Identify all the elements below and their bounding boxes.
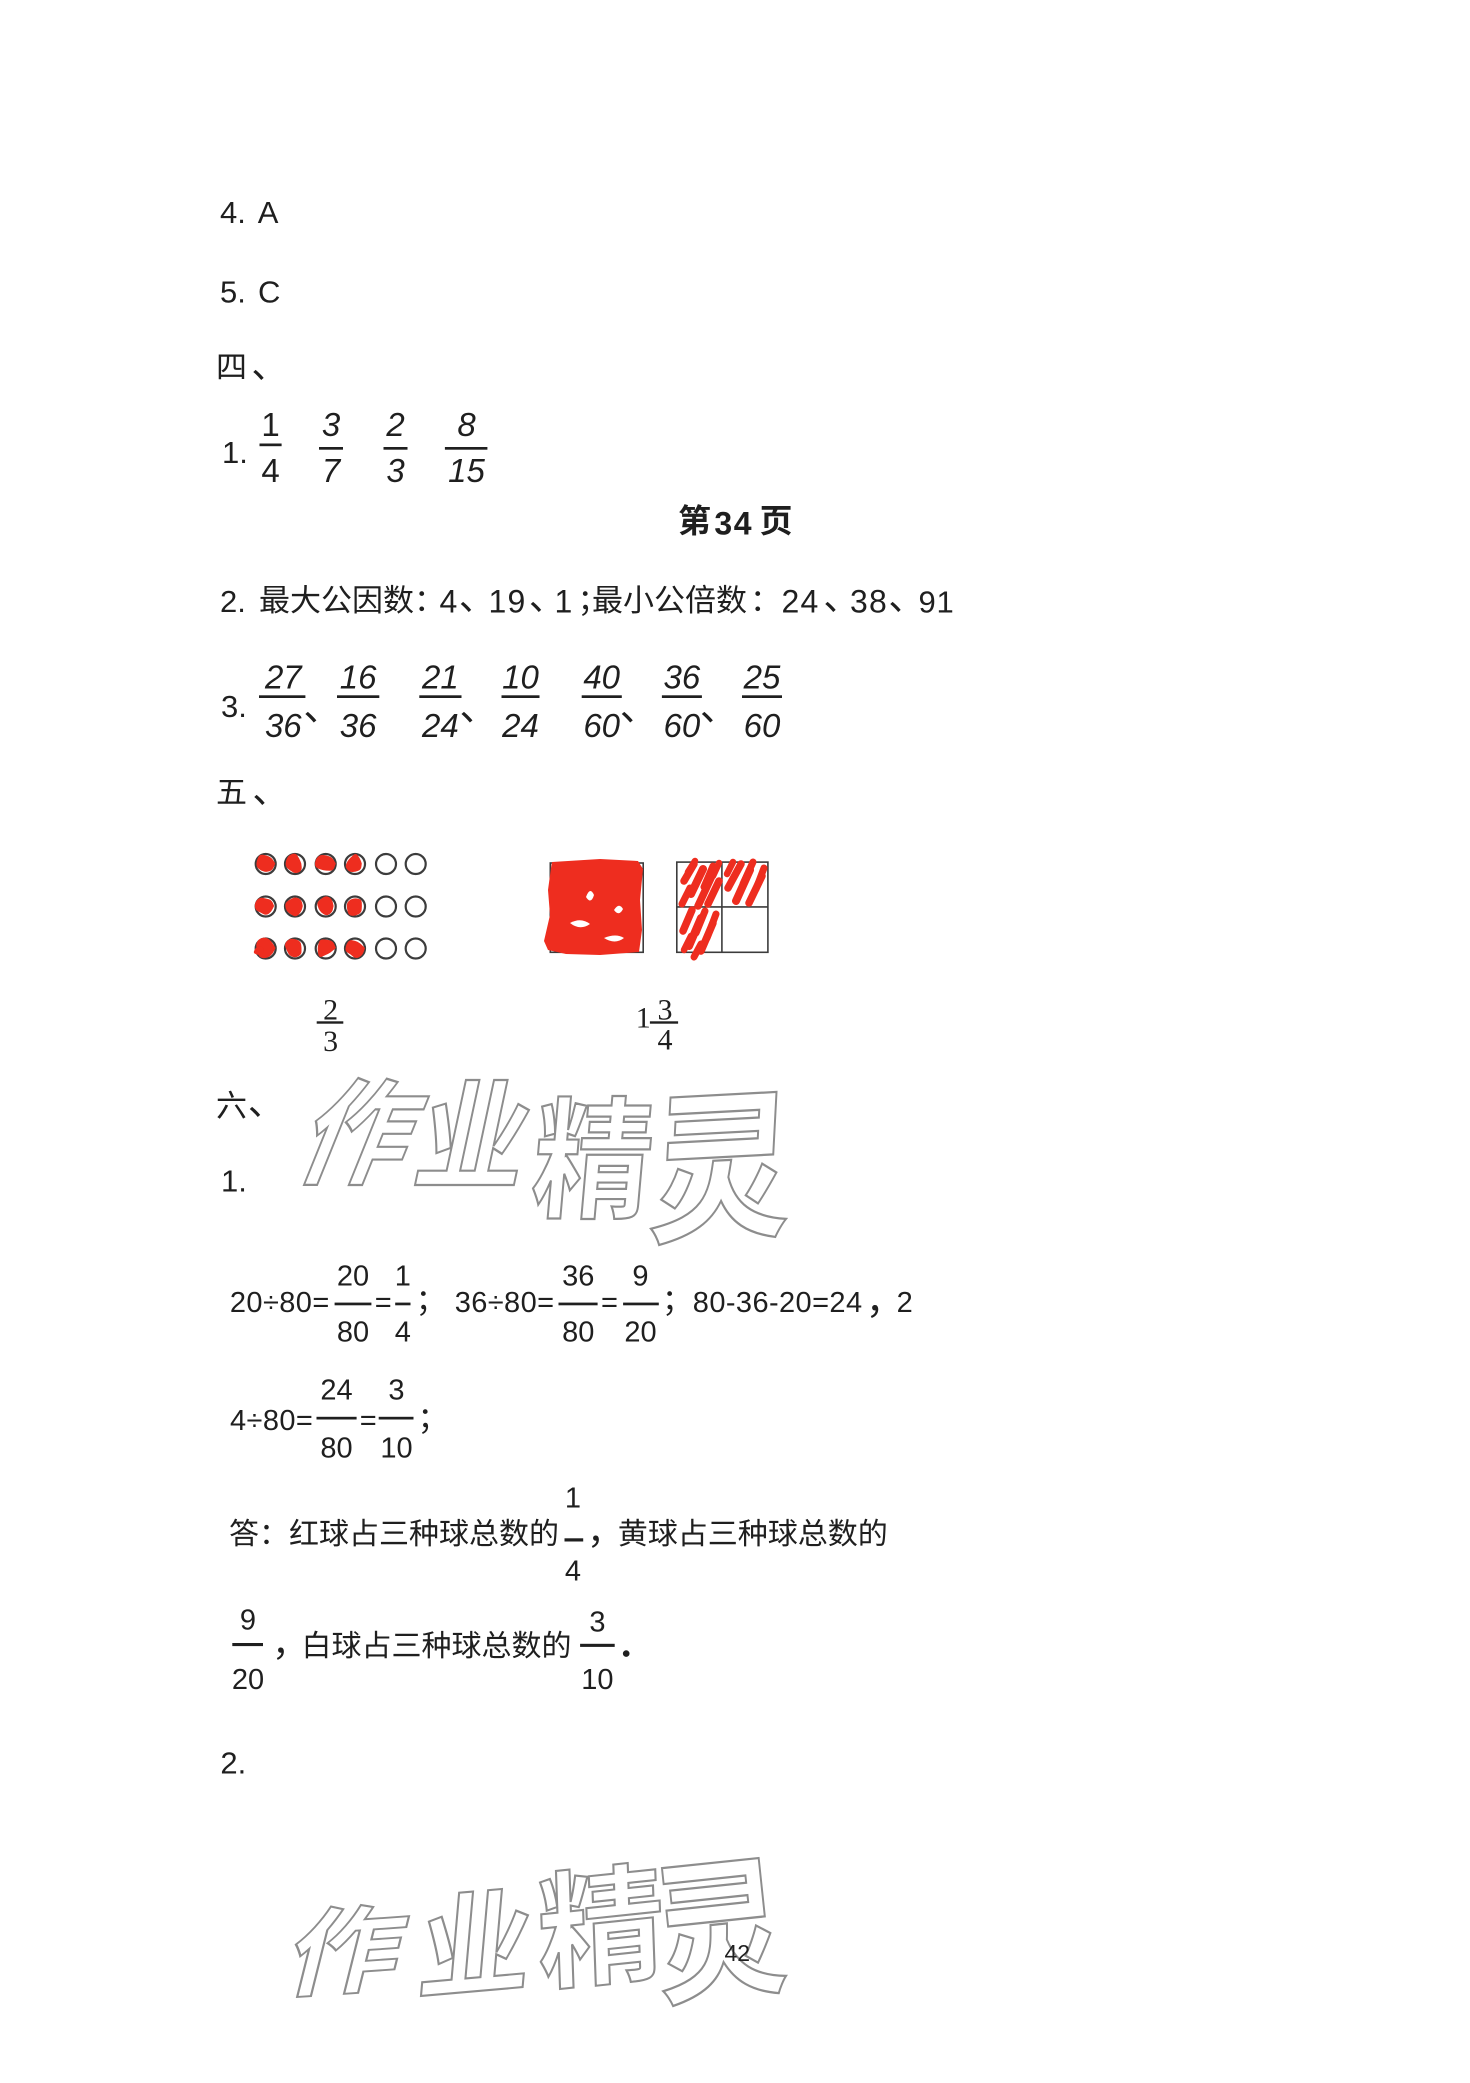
svg-text:3.: 3. xyxy=(221,689,247,724)
svg-text:4÷80=: 4÷80= xyxy=(230,1405,313,1437)
svg-text:8: 8 xyxy=(457,406,476,443)
svg-text:2: 2 xyxy=(385,406,404,443)
svg-text:C: C xyxy=(258,274,280,309)
svg-text:1: 1 xyxy=(636,1002,651,1035)
svg-text:4: 4 xyxy=(565,1556,581,1588)
svg-text:24: 24 xyxy=(320,1375,352,1407)
svg-text:4: 4 xyxy=(658,1023,673,1056)
svg-text:27: 27 xyxy=(264,659,303,696)
svg-text:36: 36 xyxy=(664,659,701,696)
svg-text:36: 36 xyxy=(265,707,302,744)
svg-text:36: 36 xyxy=(562,1261,594,1293)
svg-text:36: 36 xyxy=(340,707,377,744)
svg-text:21: 21 xyxy=(421,659,459,696)
svg-text:40: 40 xyxy=(583,659,620,696)
svg-text:3: 3 xyxy=(388,1375,404,1407)
svg-text:1: 1 xyxy=(565,1483,581,1515)
svg-text:91: 91 xyxy=(919,585,955,620)
svg-text:10: 10 xyxy=(581,1664,613,1696)
svg-text:80: 80 xyxy=(562,1317,594,1349)
svg-text:15: 15 xyxy=(448,452,485,489)
svg-text:25: 25 xyxy=(743,659,781,696)
svg-text:3: 3 xyxy=(323,1025,338,1058)
svg-text:10: 10 xyxy=(380,1433,412,1465)
svg-text:10: 10 xyxy=(502,659,539,696)
svg-text:3: 3 xyxy=(386,452,405,489)
svg-text:2.: 2. xyxy=(220,584,246,619)
svg-text:2: 2 xyxy=(897,1287,913,1319)
svg-text:4: 4 xyxy=(395,1317,411,1349)
svg-text:24: 24 xyxy=(501,707,539,744)
svg-text:38: 38 xyxy=(850,584,888,620)
svg-text:60: 60 xyxy=(664,707,701,744)
svg-text:1.: 1. xyxy=(221,1163,247,1198)
svg-text:3: 3 xyxy=(589,1607,605,1639)
svg-text:34: 34 xyxy=(714,505,753,541)
svg-text:80: 80 xyxy=(337,1317,369,1349)
svg-text:7: 7 xyxy=(322,452,342,489)
svg-text:4.: 4. xyxy=(220,195,246,230)
svg-text:1: 1 xyxy=(261,406,279,443)
svg-text:42: 42 xyxy=(725,1940,751,1966)
svg-text:4: 4 xyxy=(440,584,458,620)
svg-text:4: 4 xyxy=(261,452,279,489)
svg-text:19: 19 xyxy=(489,584,527,620)
svg-text:60: 60 xyxy=(583,707,620,744)
svg-text:24: 24 xyxy=(421,707,459,744)
svg-text:80: 80 xyxy=(320,1433,352,1465)
svg-text:20: 20 xyxy=(232,1664,264,1696)
svg-text:20÷80=: 20÷80= xyxy=(230,1287,330,1319)
svg-text:9: 9 xyxy=(632,1261,648,1293)
svg-text:=: = xyxy=(375,1287,392,1319)
svg-text:=: = xyxy=(601,1287,618,1319)
svg-text:=: = xyxy=(360,1405,377,1437)
svg-text:36÷80=: 36÷80= xyxy=(455,1287,555,1319)
svg-text:3: 3 xyxy=(322,406,341,443)
svg-text:5.: 5. xyxy=(220,274,246,309)
svg-text:1: 1 xyxy=(555,584,573,620)
svg-text:A: A xyxy=(258,195,279,230)
svg-text:16: 16 xyxy=(340,659,377,696)
svg-text:80-36-20=24: 80-36-20=24 xyxy=(693,1287,863,1319)
svg-text:24: 24 xyxy=(782,584,820,620)
svg-text:20: 20 xyxy=(624,1317,656,1349)
svg-text:1: 1 xyxy=(395,1261,411,1293)
svg-text:20: 20 xyxy=(337,1261,369,1293)
svg-text:60: 60 xyxy=(744,707,781,744)
svg-text:9: 9 xyxy=(240,1605,256,1637)
svg-text:1.: 1. xyxy=(222,435,248,470)
svg-text:2.: 2. xyxy=(220,1746,246,1781)
